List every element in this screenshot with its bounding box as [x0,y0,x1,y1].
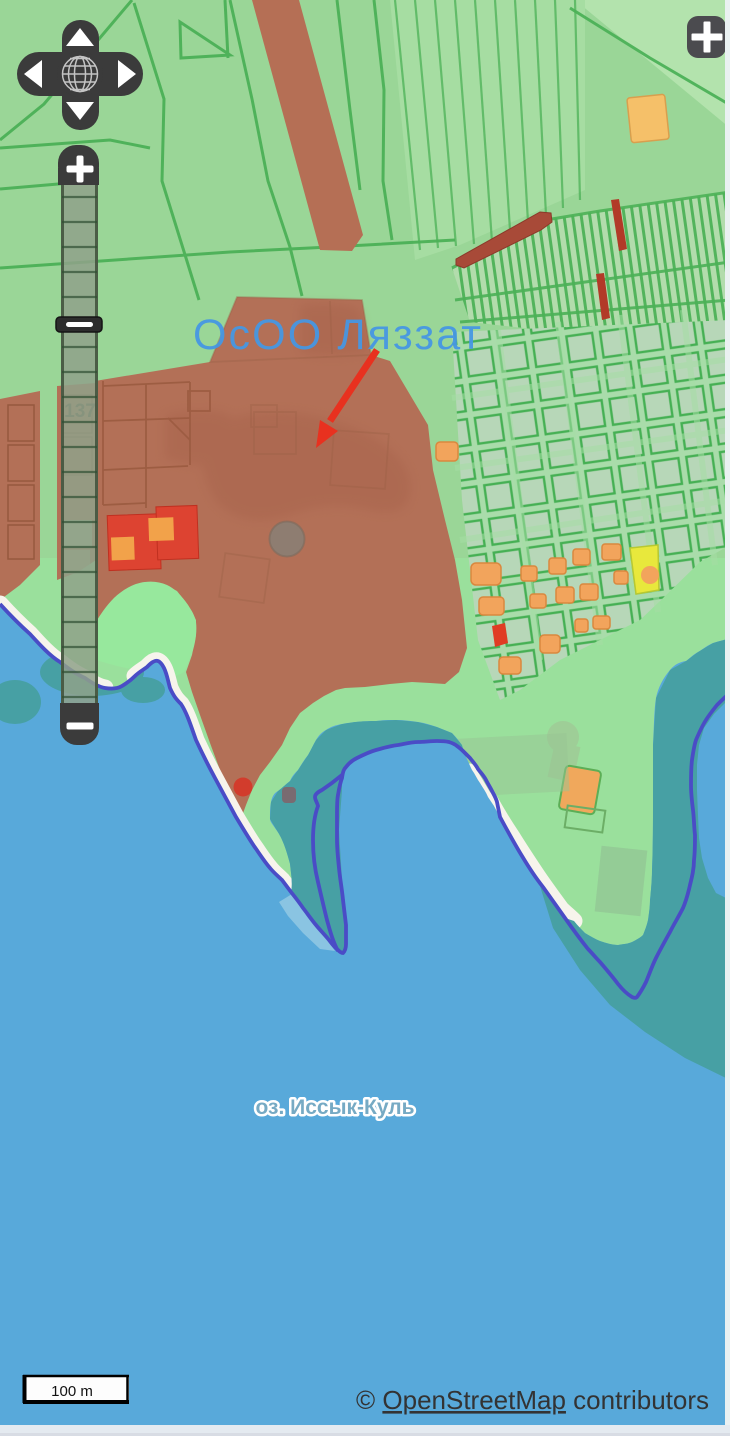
svg-text:ОсОО Ляззат: ОсОО Ляззат [193,311,481,359]
svg-text:© OpenStreetMap contributors: © OpenStreetMap contributors [356,1385,709,1415]
svg-text:100 m: 100 m [51,1383,93,1400]
svg-text:оз. Иссык-Куль: оз. Иссык-Куль [255,1096,414,1119]
